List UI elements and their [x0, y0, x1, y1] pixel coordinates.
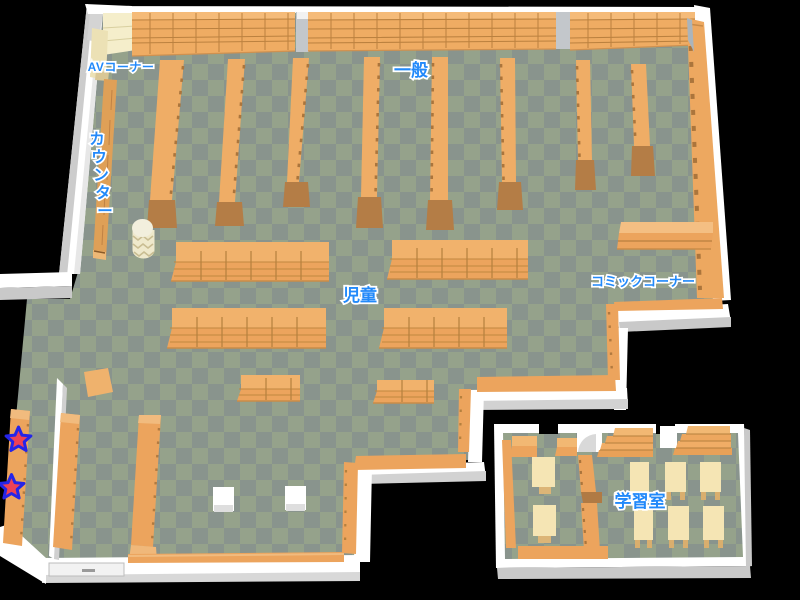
- svg-text:AVコーナー: AVコーナー: [88, 60, 155, 74]
- svg-text:ン: ン: [93, 167, 109, 184]
- svg-text:学習室: 学習室: [615, 491, 666, 511]
- svg-text:ー: ー: [97, 203, 113, 220]
- svg-text:カ: カ: [89, 130, 105, 148]
- svg-text:一般: 一般: [394, 60, 428, 80]
- svg-text:児童: 児童: [342, 285, 377, 305]
- svg-text:ウ: ウ: [91, 148, 107, 166]
- svg-text:タ: タ: [95, 184, 111, 202]
- svg-text:コミックコーナー: コミックコーナー: [591, 274, 695, 289]
